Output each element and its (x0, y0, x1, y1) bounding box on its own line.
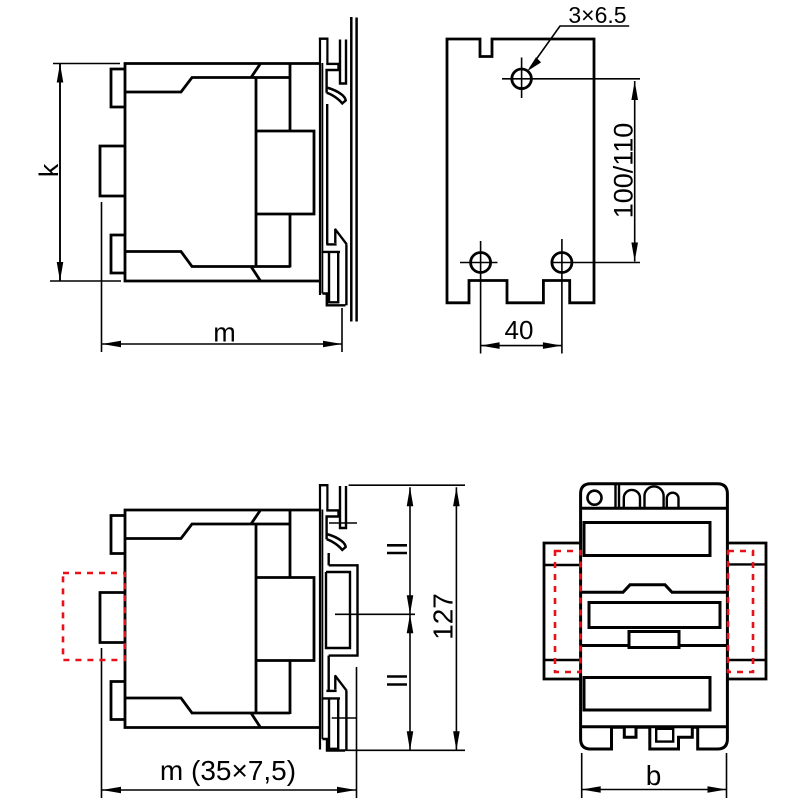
svg-text:40: 40 (505, 315, 534, 345)
svg-text:m (35×7,5): m (35×7,5) (160, 755, 296, 786)
svg-text:b: b (646, 760, 662, 791)
svg-text:k: k (34, 163, 64, 177)
svg-text:100/110: 100/110 (609, 123, 639, 219)
svg-text:3×6.5: 3×6.5 (568, 2, 626, 28)
svg-text:127: 127 (427, 593, 458, 640)
svg-text:m: m (213, 317, 236, 347)
